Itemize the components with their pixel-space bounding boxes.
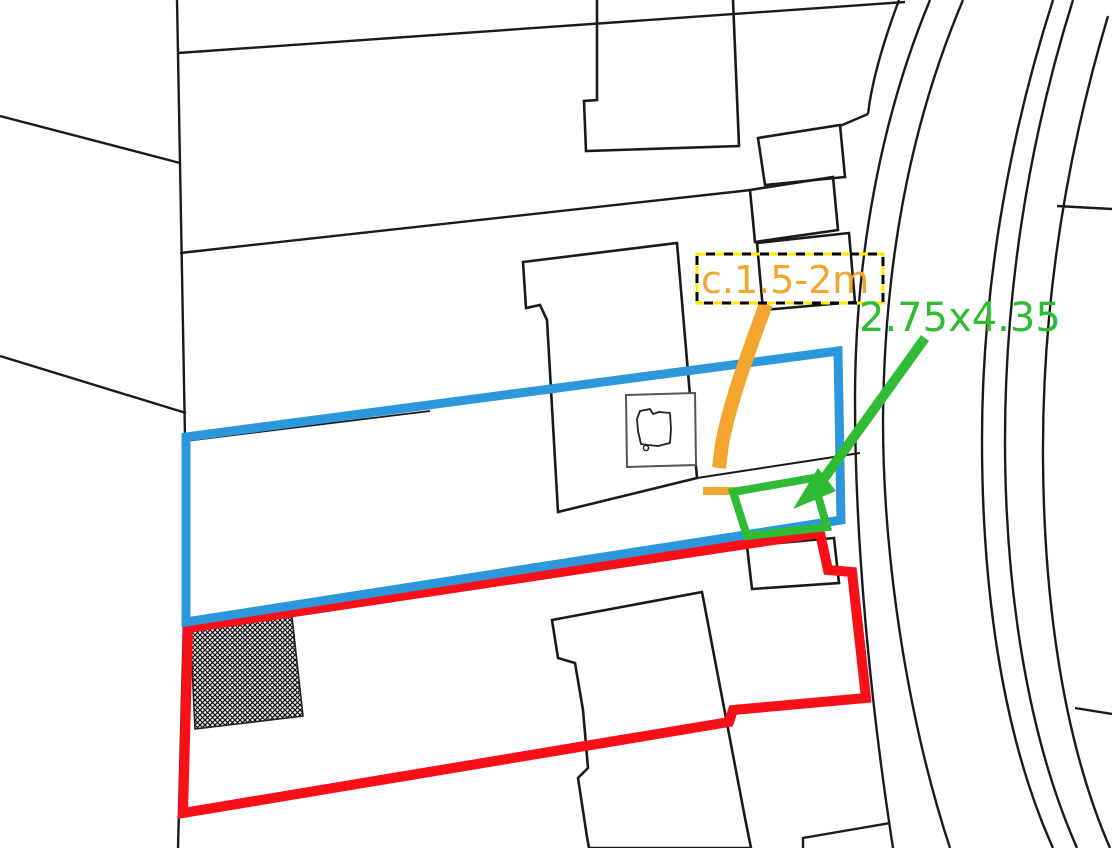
parcel-boundary-lines xyxy=(0,0,1112,848)
symbol-blob xyxy=(637,409,671,446)
green-leader-line xyxy=(810,338,925,498)
orange-gap-marker xyxy=(703,304,766,491)
site-plan-map: c.1.5-2m 2.75x4.35 xyxy=(0,0,1112,848)
road-curve-4 xyxy=(1005,0,1077,848)
road-curve-2 xyxy=(883,0,963,848)
road-curve-inner-top xyxy=(868,0,899,114)
green-dimension-marker xyxy=(733,338,925,536)
parcel-line-west-diagonal xyxy=(0,356,186,413)
parcel-line-nw-diagonal xyxy=(0,116,180,163)
parcel-line-se xyxy=(803,823,890,848)
symbol-dot xyxy=(643,445,648,450)
hatched-building xyxy=(190,617,303,729)
site-plan-drawing xyxy=(0,0,1112,848)
parcel-line-north xyxy=(178,2,905,53)
map-symbol xyxy=(626,393,696,467)
building-ne-2 xyxy=(750,177,838,242)
gap-annotation-label: c.1.5-2m xyxy=(701,261,869,301)
orange-curve xyxy=(719,304,766,468)
road-curve-5 xyxy=(1043,16,1110,848)
dimension-annotation-label: 2.75x4.35 xyxy=(859,297,1061,339)
parcel-line-west-vertical xyxy=(177,0,185,437)
road-curves xyxy=(855,0,1110,848)
parcel-line-road-corner xyxy=(840,114,868,126)
parcel-line-road-east-lower xyxy=(1075,708,1112,714)
parcel-line-road-east-upper xyxy=(1057,206,1112,209)
